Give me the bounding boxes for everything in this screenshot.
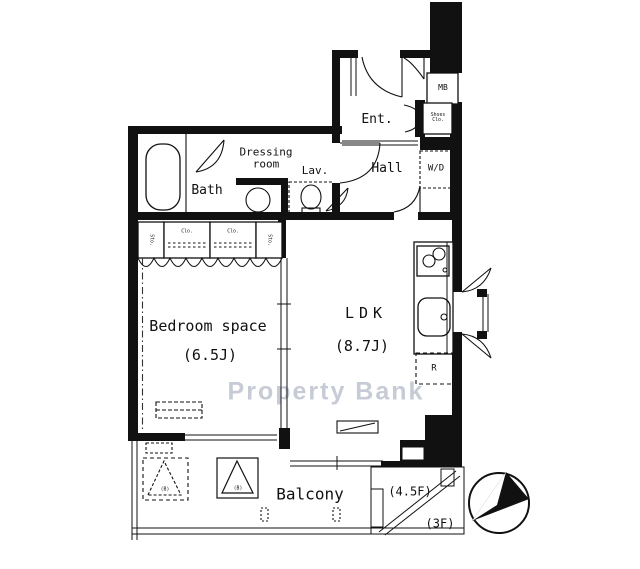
bay-leaf-top: [462, 268, 491, 292]
compass: [469, 472, 529, 533]
closet-folding-doors: [138, 258, 282, 267]
wall-shaft-top: [430, 2, 462, 73]
kitchen-sink: [418, 298, 450, 336]
toilet-bowl: [301, 185, 321, 209]
washing-machine: [246, 188, 270, 212]
bedroom-size-label: (6.5J): [183, 348, 237, 364]
wall-west: [128, 126, 138, 441]
closet-box-left: [164, 222, 210, 258]
entry-subarc: [404, 58, 424, 79]
lavatory-label: Lav.: [302, 165, 329, 177]
entry-door-arc: [362, 57, 402, 97]
meter-box-label: MB: [438, 84, 448, 92]
hatch-left-label: (B): [161, 487, 170, 492]
washer-dryer-label: W/D: [428, 164, 444, 173]
bedroom-label: Bedroom space: [149, 319, 266, 335]
floor-plan: Property Bank: [0, 0, 640, 569]
dressing-room-label: Dressing room: [240, 146, 293, 169]
closet-right-label: Clo.: [227, 229, 239, 234]
balcony-dashed-corner: [146, 443, 172, 453]
wall-porch-left: [336, 50, 358, 58]
wall-mid-horizontal: [128, 212, 394, 220]
hall-label: Hall: [371, 162, 402, 176]
storage-right-label: Sto.: [266, 234, 271, 246]
wall-north: [128, 126, 342, 134]
entrance-label: Ent.: [361, 113, 392, 127]
hatch-right-label: (B): [234, 486, 243, 491]
bath-label: Bath: [191, 184, 222, 198]
wall-mid-right: [418, 212, 452, 220]
stairwell-lower-floor-label: (3F): [426, 518, 455, 531]
ldk-size-label: (8.7J): [335, 339, 389, 355]
balcony-label: Balcony: [276, 487, 343, 504]
wall-lav-left: [281, 178, 288, 220]
wall-bedroom-south: [128, 433, 185, 441]
storage-left-label: Sto.: [148, 234, 153, 246]
bathtub: [146, 144, 180, 210]
wall-porch-right: [400, 50, 430, 58]
wall-bay-post-top: [477, 289, 487, 297]
stairwell-left-box: [371, 489, 383, 527]
closet-left-label: Clo.: [181, 229, 193, 234]
shoes-closet-label: Shoes Clo.: [431, 113, 445, 123]
stairwell-upper-floors-label: (4.5F): [388, 486, 431, 499]
wall-hall-wd: [420, 137, 452, 150]
closet-box-right: [210, 222, 256, 258]
dressing-room-line2: room: [253, 157, 280, 170]
ldk-door-arc: [394, 186, 420, 212]
shoes-closet-line2: Clo.: [432, 117, 444, 123]
small-meter-box: [402, 447, 424, 460]
wall-partition-post: [279, 428, 290, 449]
ldk-label: LDK: [345, 306, 387, 322]
wall-dressing-sub: [236, 178, 288, 185]
refrigerator-label: R: [431, 364, 436, 373]
wall-bay-post-bottom: [477, 331, 487, 339]
balcony-post-1: [261, 508, 268, 521]
balcony-post-2: [333, 508, 340, 521]
